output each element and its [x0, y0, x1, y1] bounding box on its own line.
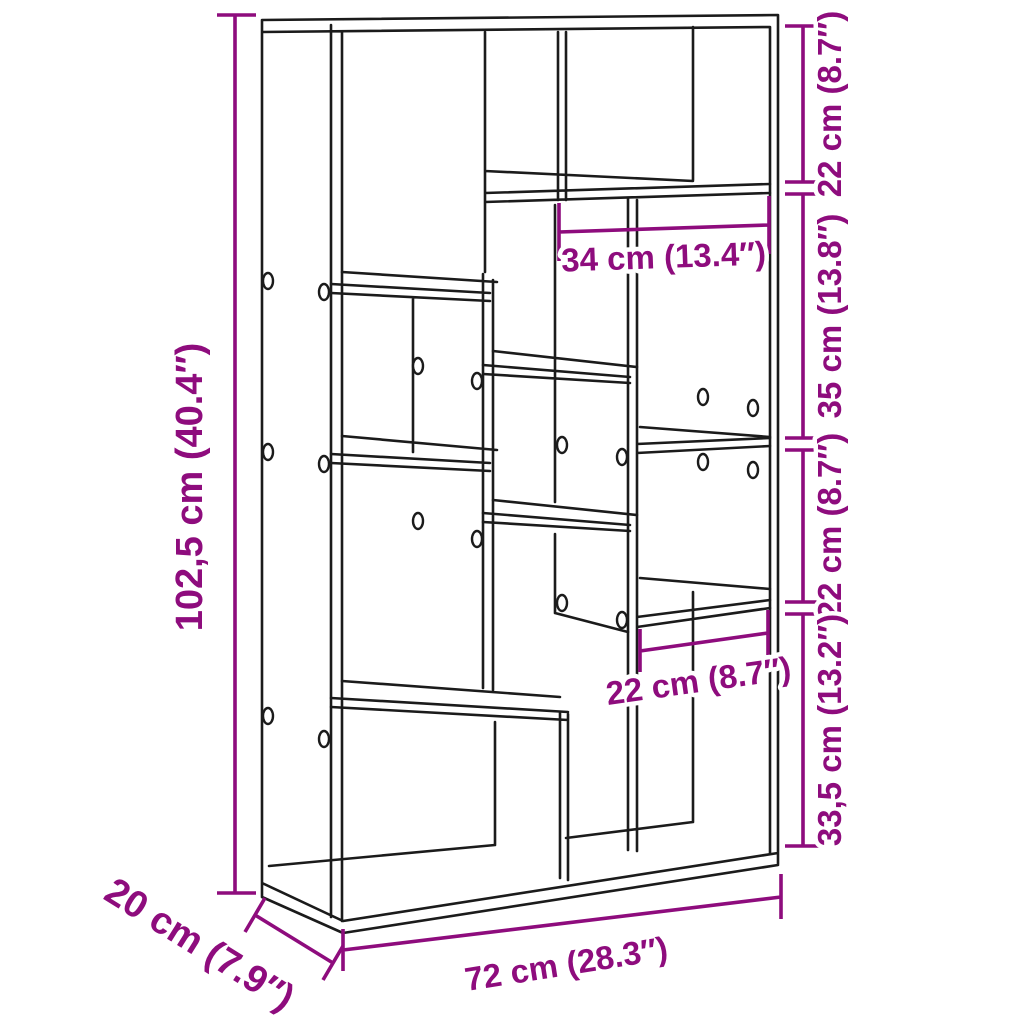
dimension-overall-height: 102,5 cm (40.4″) [169, 15, 256, 893]
lower-right-width-label: 22 cm (8.7″) [604, 649, 794, 712]
dimension-top-compartment-width: 34 cm (13.4″) [559, 196, 769, 279]
right-column-shelves [566, 198, 770, 851]
upper-left-compartment [331, 272, 497, 690]
bottom-left-compartment [269, 681, 568, 880]
dimension-overall-width: 72 cm (28.3″) [343, 874, 781, 998]
overall-width-label: 72 cm (28.3″) [462, 929, 670, 998]
overall-height-label: 102,5 cm (40.4″) [169, 343, 211, 632]
top-compartment-width-label: 34 cm (13.4″) [561, 234, 767, 278]
bookshelf-line-drawing [262, 15, 778, 933]
right-segment-bottom-label: 33,5 cm (13.2″) [811, 614, 848, 846]
dimension-right-segments: 22 cm (8.7″) 35 cm (13.8″) 22 cm (8.7″) … [785, 11, 848, 846]
furniture-dimension-diagram: 102,5 cm (40.4″) 22 cm (8.7″) 35 cm (13.… [0, 0, 1024, 1024]
right-segment-top-label: 22 cm (8.7″) [811, 11, 848, 197]
right-segment-third-label: 22 cm (8.7″) [811, 433, 848, 619]
bookshelf-outer-frame [262, 15, 778, 933]
dimension-lower-right-width: 22 cm (8.7″) [604, 610, 794, 712]
overall-depth-label: 20 cm (7.9″) [97, 870, 301, 1019]
right-segment-second-label: 35 cm (13.8″) [811, 214, 848, 419]
diagram-canvas: 102,5 cm (40.4″) 22 cm (8.7″) 35 cm (13.… [0, 0, 1024, 1024]
